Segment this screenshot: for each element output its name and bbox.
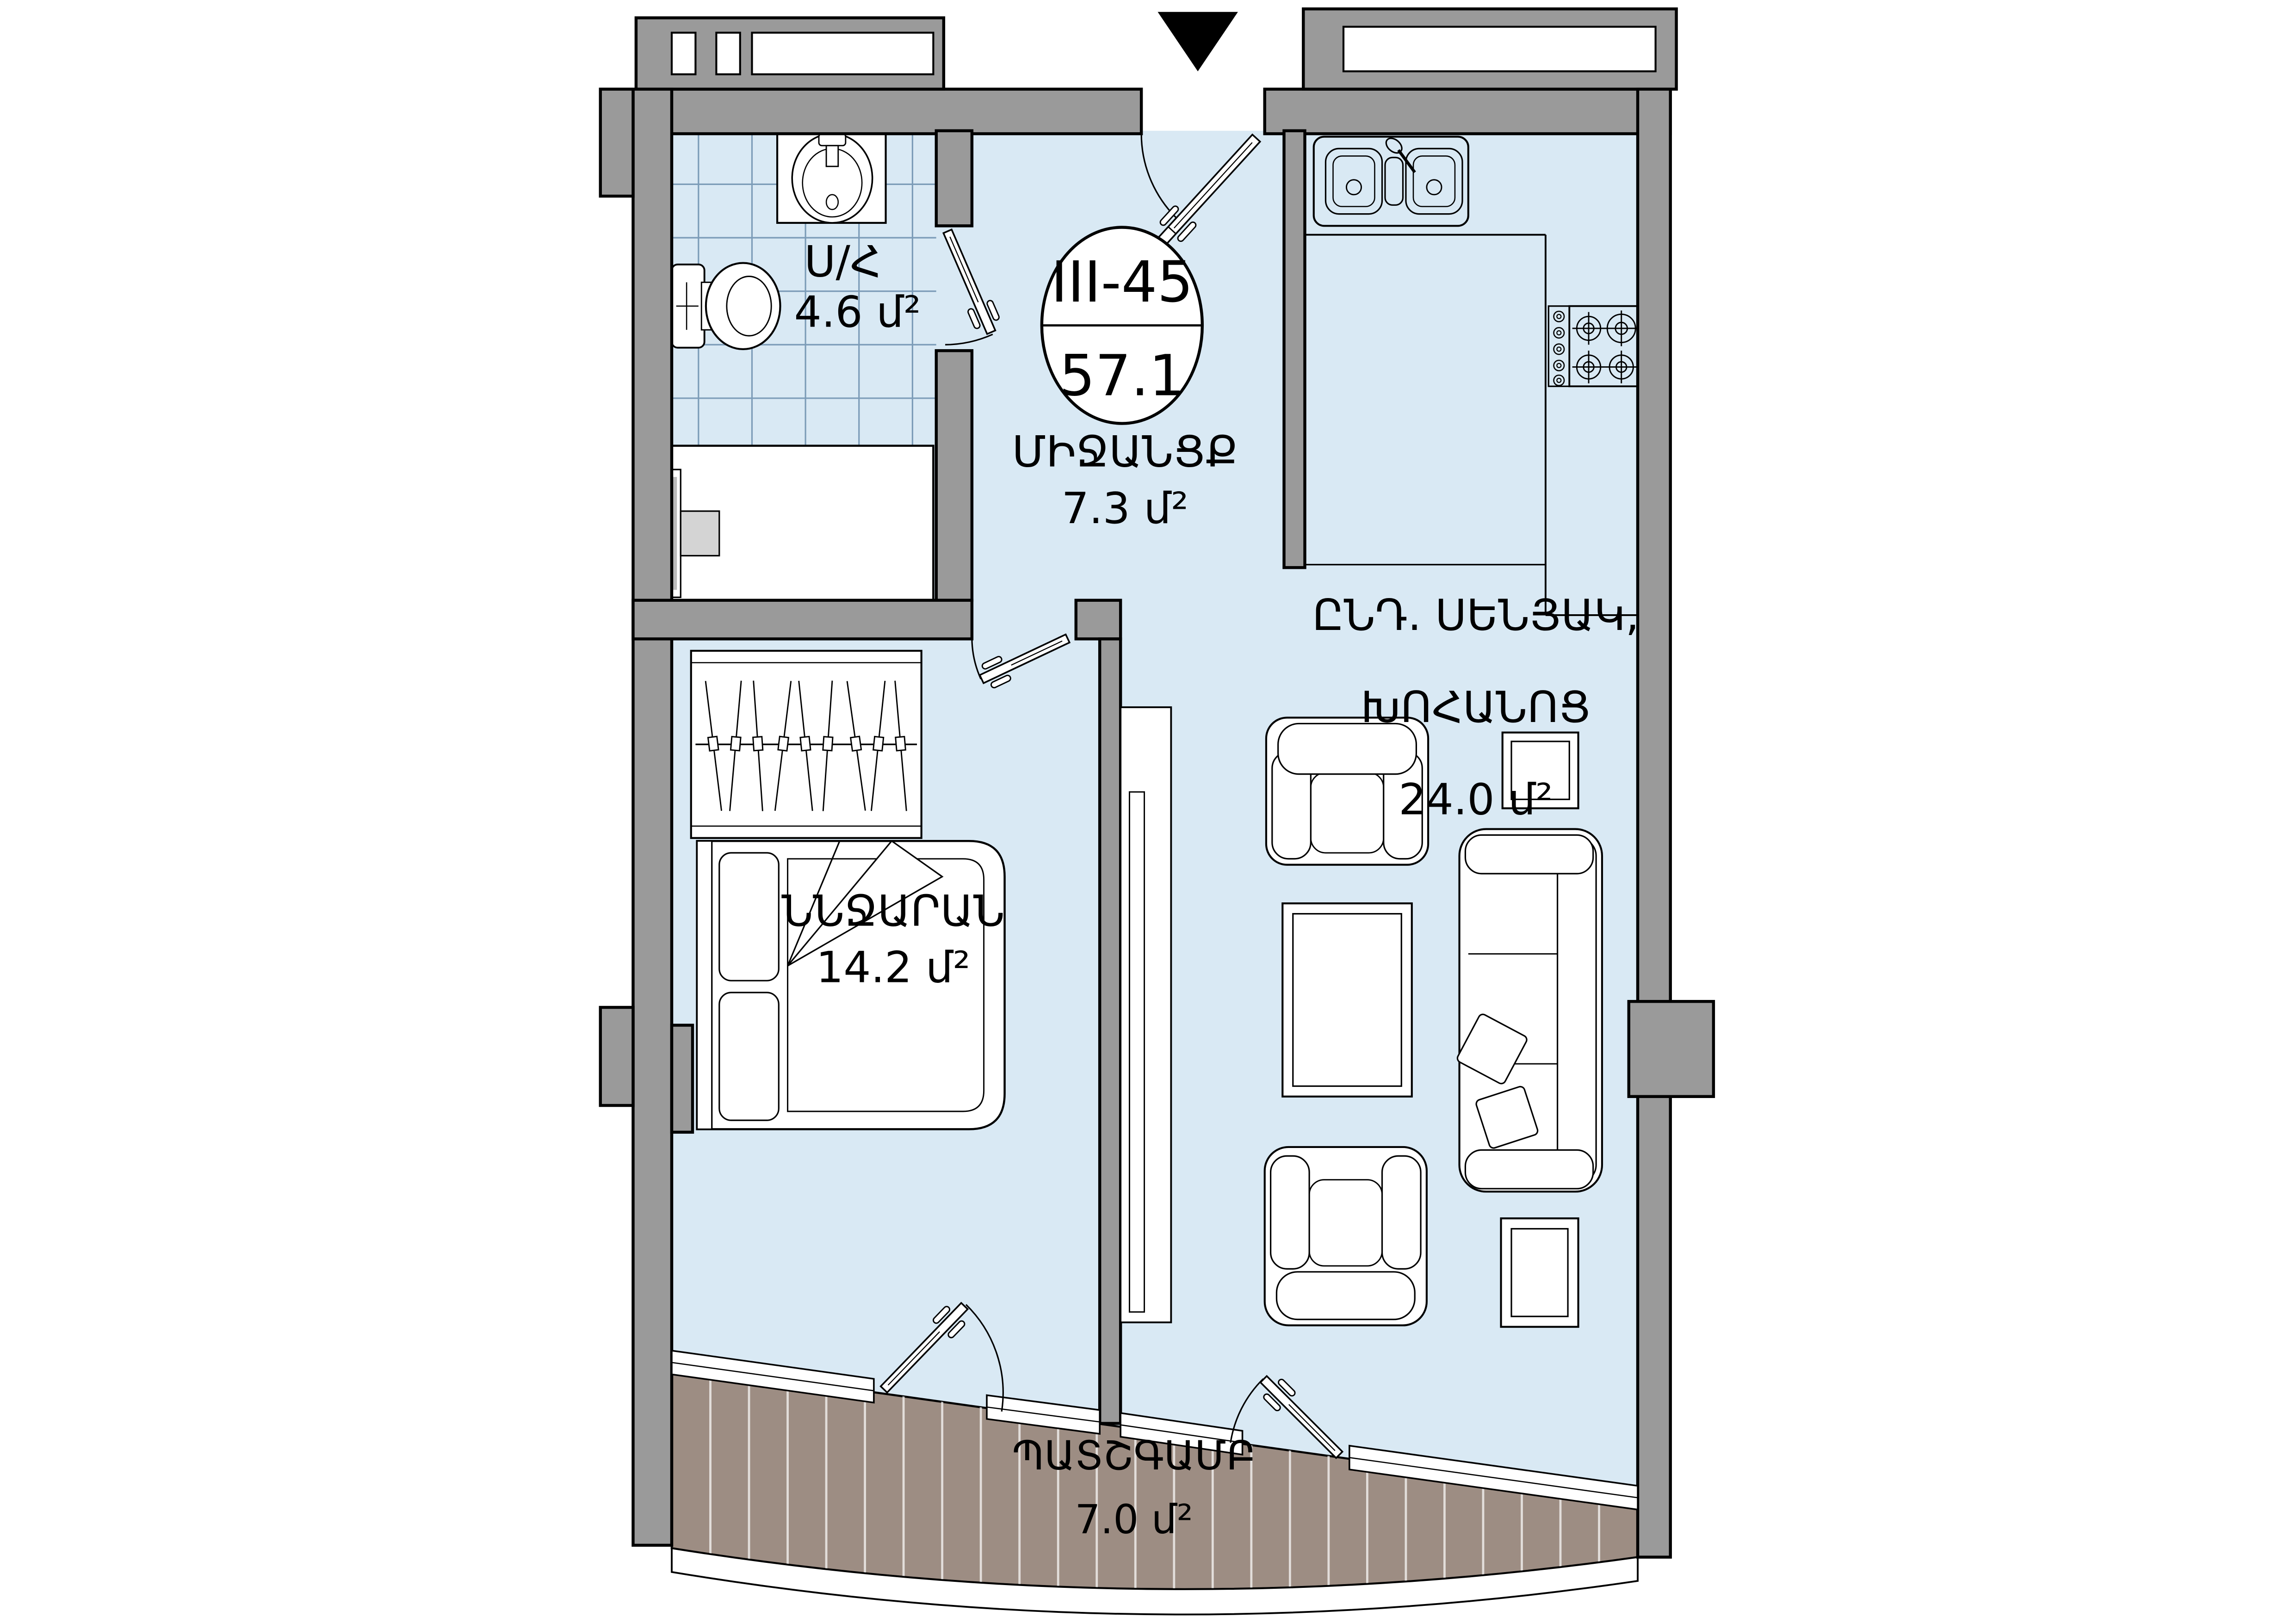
- coffee-table: [1282, 903, 1411, 1097]
- floor-plan: III-45 57.1 Ս/Հ 4.6 մ² ՄԻՋԱՆՑՔ 7.3 մ² ԸՆ…: [0, 0, 2296, 1623]
- wardrobe: [691, 651, 922, 838]
- pillow-1: [719, 853, 779, 981]
- wall-left-pier-inner: [672, 1025, 693, 1132]
- bathroom-name: Ս/Հ: [804, 237, 881, 287]
- armchair-bottom: [1265, 1147, 1427, 1325]
- wall-right: [1638, 89, 1671, 1557]
- side-table-bottom: [1501, 1218, 1578, 1327]
- unit-code: III-45: [1051, 249, 1193, 315]
- wall-bathroom-bottom: [633, 600, 972, 639]
- wall-left: [633, 89, 672, 1545]
- sofa: [1456, 829, 1602, 1192]
- bathroom-vanity: [777, 131, 886, 223]
- wall-top-right: [1265, 89, 1671, 134]
- living-name-line2: ԽՈՀԱՆՈՑ: [1361, 682, 1590, 732]
- wall-left-pier-top: [600, 89, 633, 196]
- hallway-name: ՄԻՋԱՆՑՔ: [1012, 427, 1238, 477]
- toilet-icon: [672, 263, 780, 349]
- pillow-2: [719, 993, 779, 1120]
- window-top-left: [752, 33, 933, 74]
- bathroom-area: 4.6 մ²: [794, 287, 921, 337]
- bedroom-area: 14.2 մ²: [816, 942, 970, 992]
- wall-right-column: [1629, 1001, 1714, 1097]
- wall-divider-vertical: [1100, 639, 1120, 1423]
- hallway-area: 7.3 մ²: [1062, 483, 1188, 533]
- unit-badge: III-45 57.1: [1042, 227, 1202, 423]
- balcony-area: 7.0 մ²: [1075, 1496, 1193, 1543]
- wall-divider-stub: [1076, 600, 1120, 639]
- shower-head-icon: [681, 511, 719, 555]
- living-name-line1: ԸՆԴ. ՍԵՆՅԱԿ,: [1312, 590, 1640, 640]
- wall-bathroom-right-lower: [936, 351, 972, 600]
- wall-left-pier-mid: [600, 1007, 633, 1105]
- window-top-right: [1343, 27, 1656, 71]
- balcony-name: ՊԱՏՇԳԱՄԲ: [1012, 1432, 1256, 1479]
- shower: [654, 446, 933, 600]
- wall-hall-kitchen: [1284, 131, 1305, 568]
- unit-total-area: 57.1: [1059, 343, 1185, 408]
- divider-cabinet: [1120, 707, 1171, 1322]
- wall-top-left: [602, 89, 1141, 134]
- floor-plan-canvas: III-45 57.1 Ս/Հ 4.6 մ² ՄԻՋԱՆՑՔ 7.3 մ² ԸՆ…: [0, 0, 2296, 1623]
- vent-slot-2: [716, 33, 740, 74]
- living-area: 24.0 մ²: [1399, 774, 1553, 824]
- wall-bathroom-right-upper: [936, 131, 972, 226]
- vent-slot-1: [672, 33, 695, 74]
- bedroom-name: ՆՆՋԱՐԱՆ: [781, 886, 1005, 936]
